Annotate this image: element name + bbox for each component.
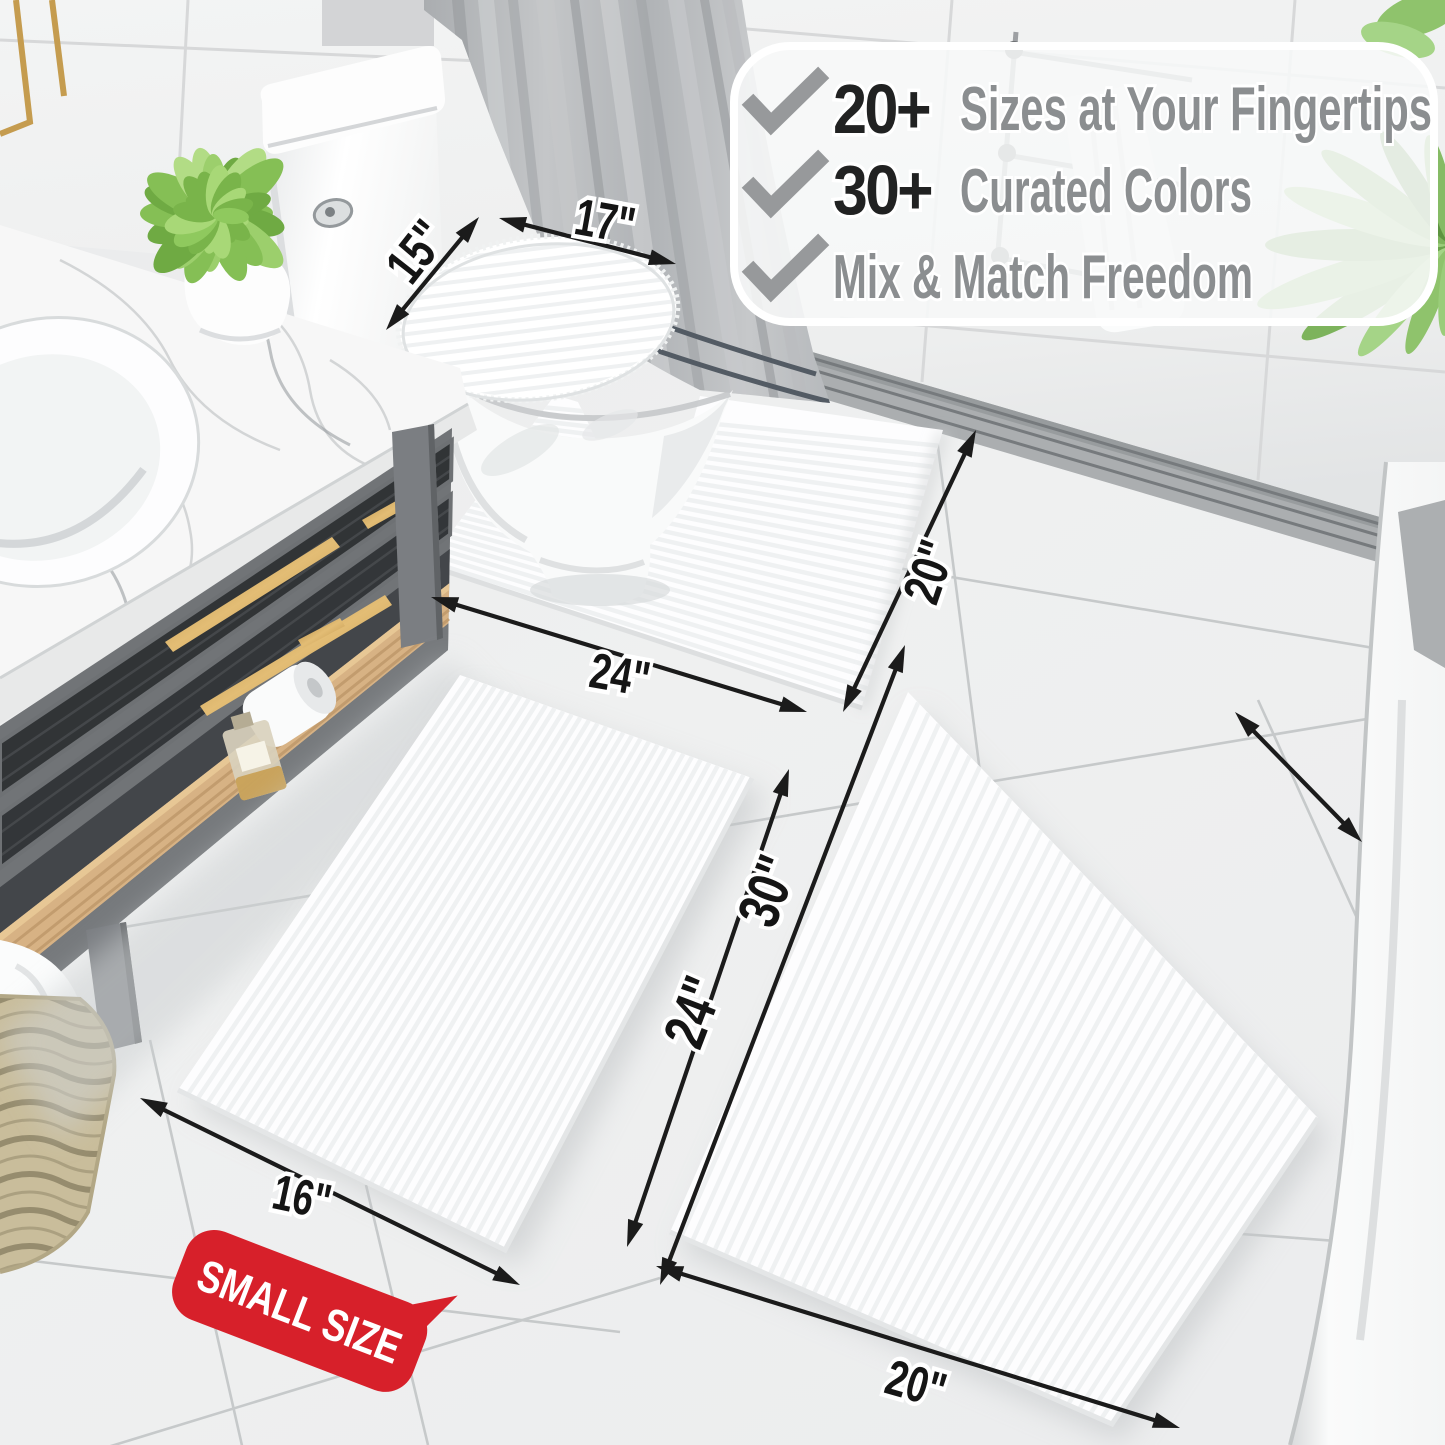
svg-text:24": 24" xyxy=(586,642,655,708)
svg-text:Curated Colors: Curated Colors xyxy=(960,157,1252,226)
svg-text:17": 17" xyxy=(570,188,639,256)
svg-text:16": 16" xyxy=(268,1164,336,1231)
svg-text:20+: 20+ xyxy=(833,70,930,148)
svg-text:Sizes at Your Fingertips: Sizes at Your Fingertips xyxy=(960,75,1432,144)
svg-text:30+: 30+ xyxy=(833,151,932,229)
svg-text:Mix & Match Freedom: Mix & Match Freedom xyxy=(833,243,1253,312)
